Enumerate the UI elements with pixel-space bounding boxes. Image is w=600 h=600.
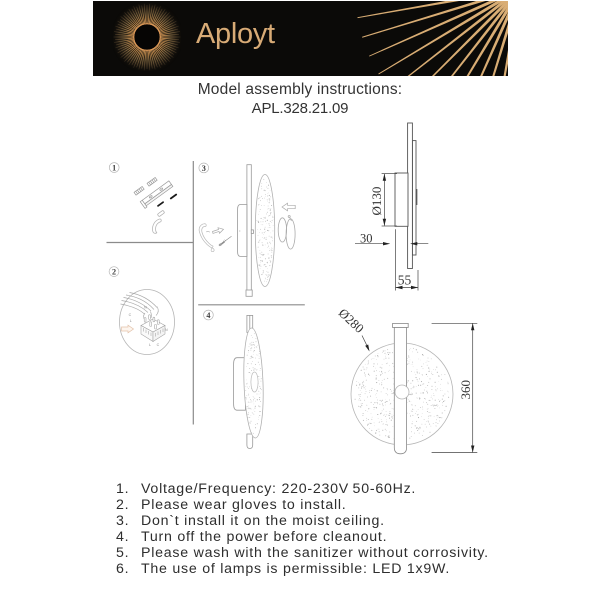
svg-text:2: 2 <box>112 268 116 277</box>
svg-text:Ø280: Ø280 <box>336 305 367 336</box>
svg-text:4: 4 <box>206 311 210 320</box>
svg-text:1: 1 <box>112 163 116 172</box>
svg-text:Ø130: Ø130 <box>369 187 384 216</box>
svg-text:N: N <box>144 306 147 310</box>
svg-text:360: 360 <box>458 380 473 400</box>
svg-text:55: 55 <box>398 273 412 288</box>
svg-text:C: C <box>157 343 160 347</box>
svg-text:L: L <box>149 343 151 347</box>
svg-text:3: 3 <box>202 164 206 173</box>
svg-text:L: L <box>130 319 132 323</box>
svg-text:C: C <box>129 313 132 317</box>
svg-text:N: N <box>165 328 168 332</box>
